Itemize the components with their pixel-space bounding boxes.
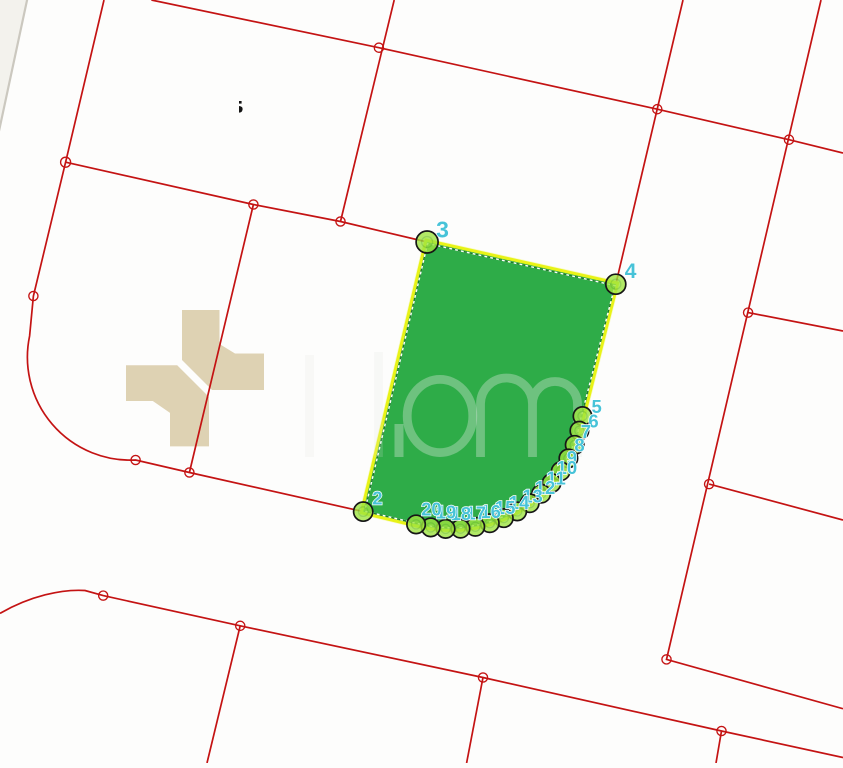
svg-text:4: 4 (625, 260, 637, 283)
svg-text:20: 20 (421, 498, 442, 519)
svg-text:2: 2 (372, 488, 382, 509)
svg-text:3: 3 (436, 217, 449, 243)
